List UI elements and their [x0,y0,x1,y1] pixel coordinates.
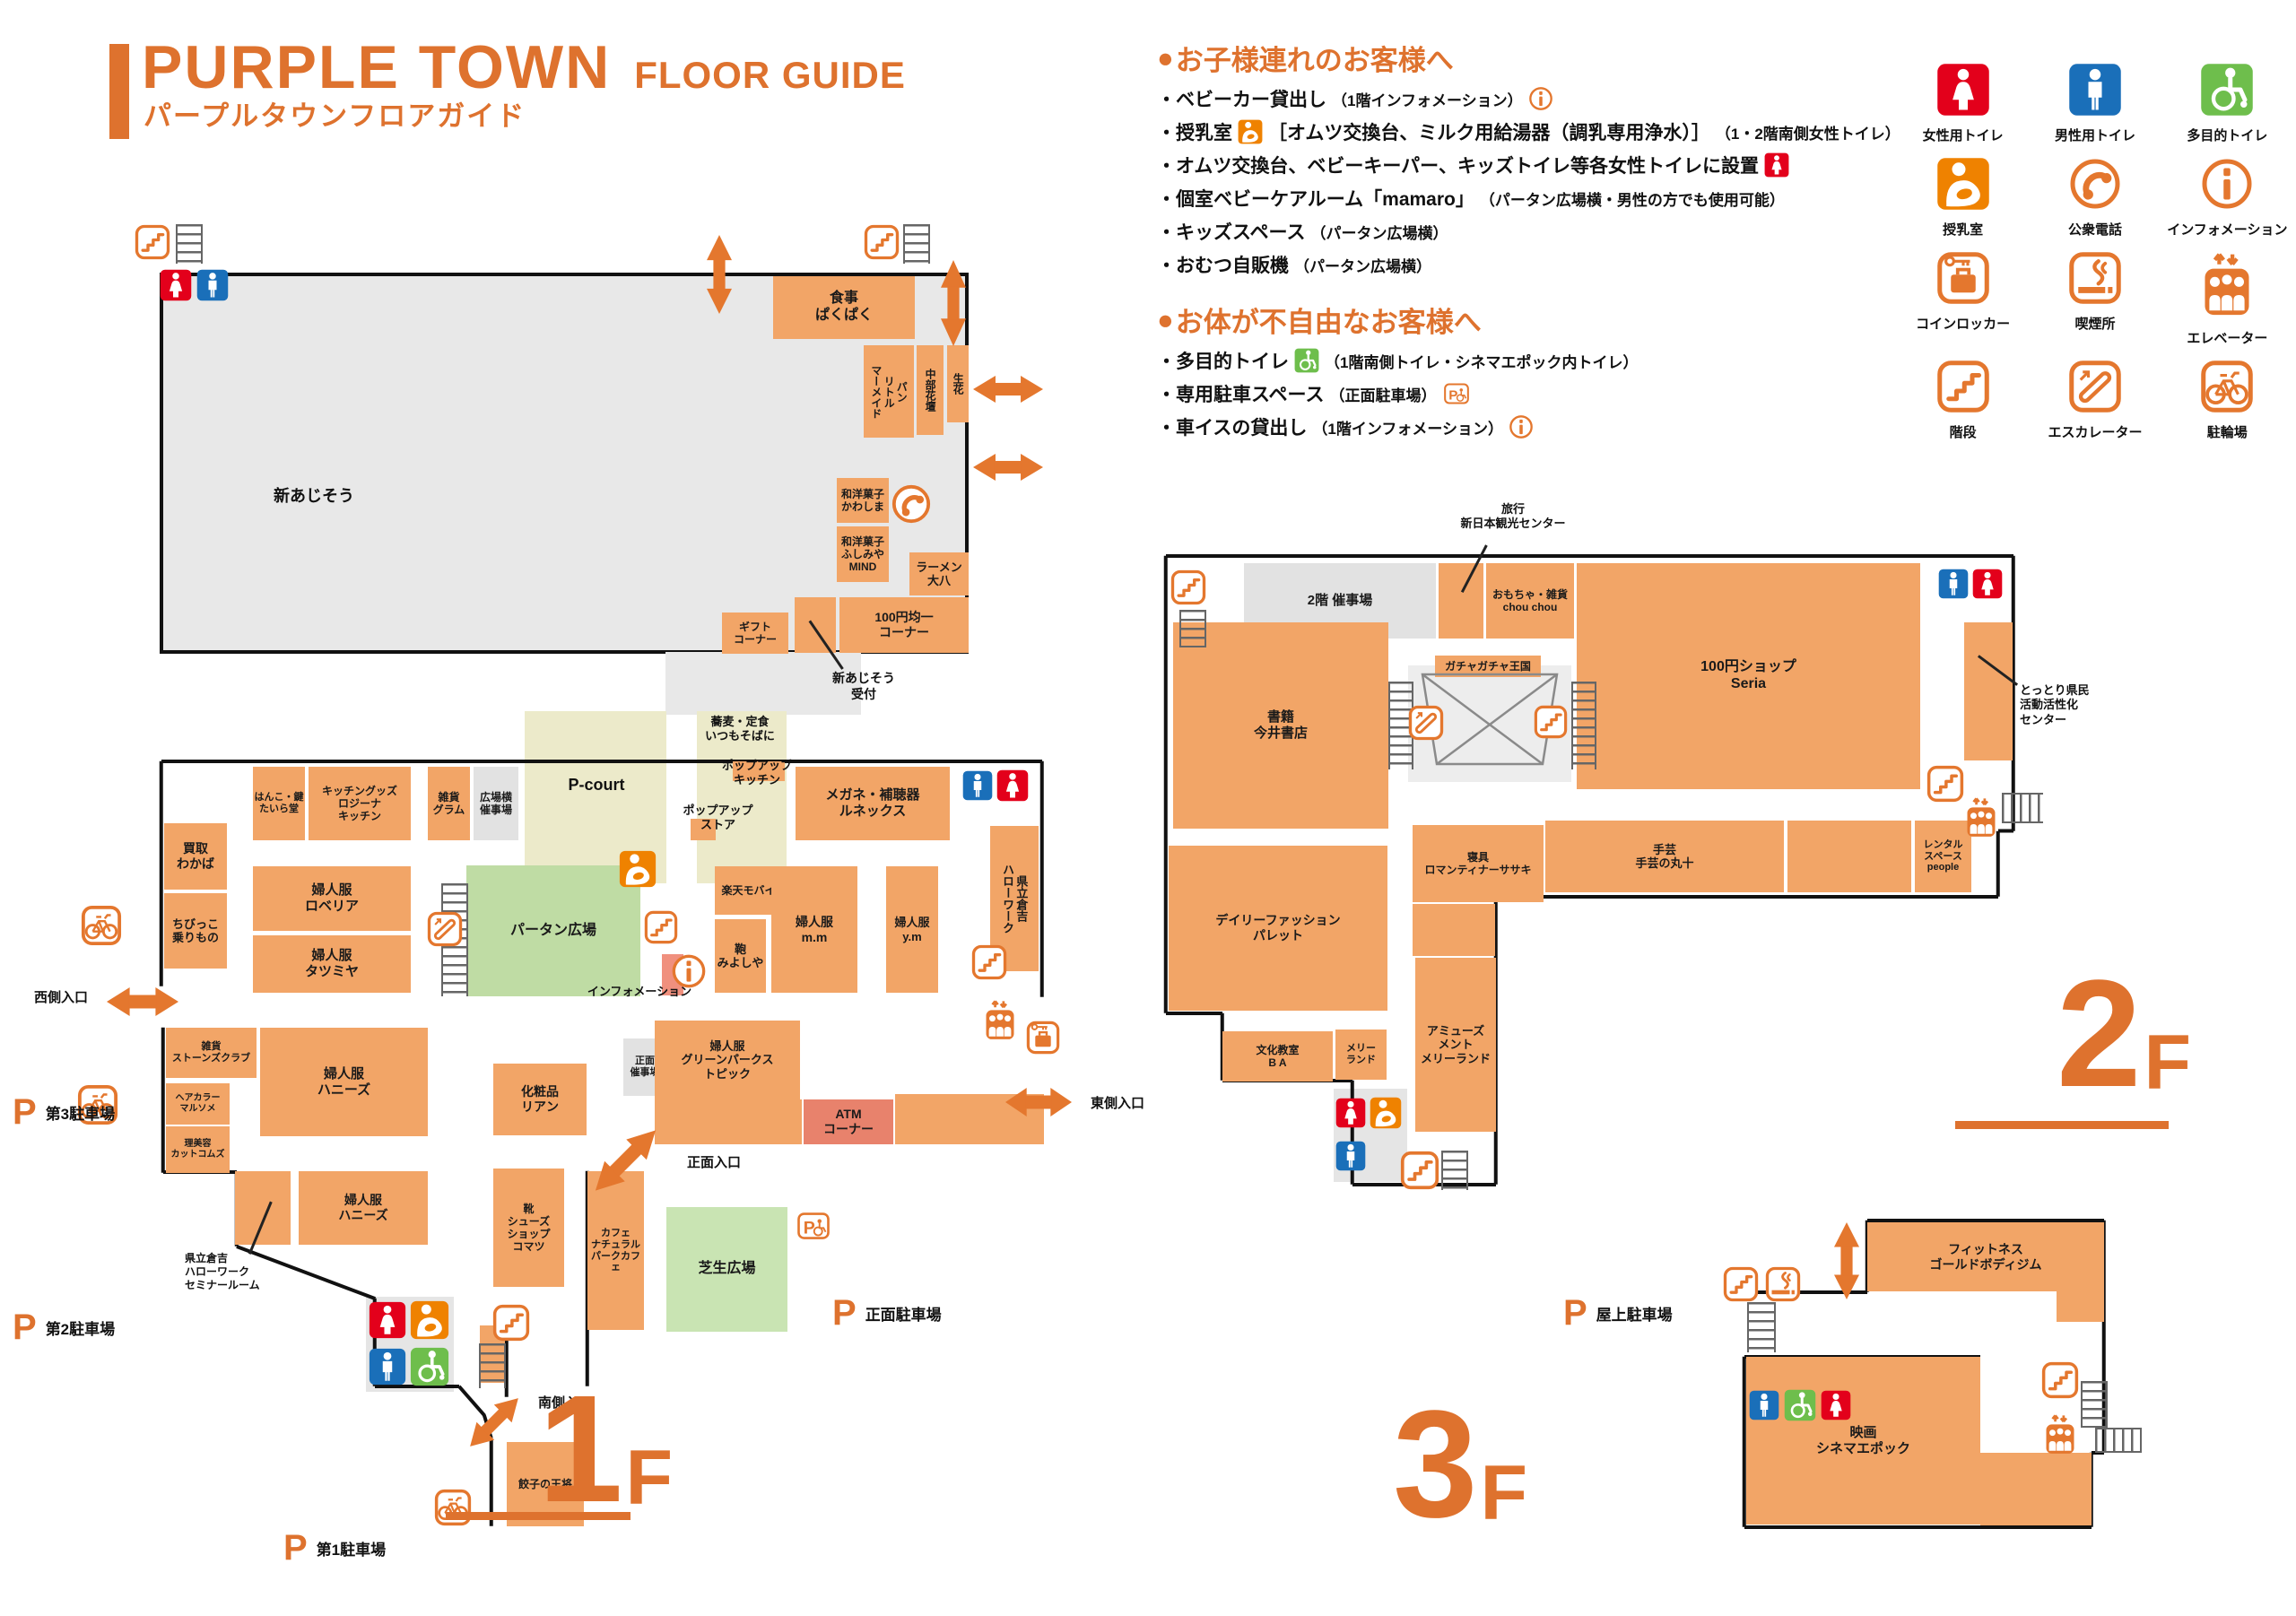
floor-number: 2 [2057,973,2142,1095]
floor-underline [1955,1121,2169,1129]
map-border-line [1744,1525,2092,1529]
floor-label-2f: 2F [2057,973,2191,1095]
store-block [655,1099,802,1144]
floor-number: 3 [1393,1403,1478,1525]
stairs-icon [1400,1149,1439,1192]
store-block: ヘアカラー マルソメ [166,1083,230,1125]
map-text: 新あじそう 受付 [814,671,913,702]
stairs-icon [864,222,900,262]
toiletF-icon [369,1299,406,1342]
stairs-icon [1534,703,1568,741]
store-block: 手芸 手芸の丸十 [1545,821,1784,892]
store-block: 婦人服 y.m [886,866,938,993]
parking-icon: P [832,1295,857,1331]
floor-underline [446,1512,631,1520]
entrance-arrow [973,453,1043,482]
toiletF-icon [1972,563,2003,604]
entrance-arrow [107,986,178,1017]
store-block: 婦人服 タツミヤ [253,935,411,993]
store-block: 映画 シネマエポック [1746,1357,1980,1525]
nursing-icon [1370,1092,1402,1134]
stairs-hatch [2095,1428,2142,1453]
map-border-line [1996,831,2000,897]
store-block: 生花 [947,345,969,422]
toiletM-icon [1335,1135,1366,1177]
floor-map: 食事 ぱくぱくパン リトル マーメイド中部花壇生花和洋菓子 かわしま和洋菓子 ふ… [0,0,2296,1616]
map-text: とっとり県民 活動活性化 センター [2020,683,2136,727]
store-block: 理美容 カットコムズ [166,1126,230,1173]
store-block: メリー ランド [1335,1030,1387,1080]
store-block: アミューズ メント メリーランド [1415,958,1496,1132]
stairs-hatch [1441,1151,1468,1190]
store-block: 化粧品 リアン [493,1064,587,1135]
map-border-line [458,1386,486,1416]
store-block: 書籍 今井書店 [1173,622,1388,829]
bicycle-icon [81,904,122,947]
parking-name: 第2駐車場 [46,1316,115,1339]
store-block: 婦人服 グリーンパークス トピック [655,1021,800,1099]
entrance-arrow [973,375,1043,404]
store-block: キッチングッズ ロジーナ キッチン [309,767,411,840]
store-block: はんこ・鍵 たいら堂 [253,767,305,840]
store-block: 100円均一 コーナー [839,597,969,653]
stairs-icon [971,943,1007,982]
store-block [1980,1453,2092,1525]
stairs-icon [1170,568,1206,607]
stairs-hatch [2081,1381,2108,1428]
stairs-icon [1723,1264,1759,1304]
stairs-icon [1926,763,1964,804]
escalator-icon [427,909,463,949]
map-border-line [1166,1012,1222,1015]
parking-name: 屋上駐車場 [1596,1302,1673,1325]
store-block: パン リトル マーメイド [864,345,914,438]
map-text: 新あじそう [251,486,377,507]
store-block [1787,821,1911,892]
parking-label: P屋上駐車場 [1563,1295,1673,1331]
parking-label: P正面駐車場 [832,1295,942,1331]
store-block: 婦人服 ハニーズ [260,1028,428,1136]
store-block: 雑貨 グラム [428,767,470,840]
floor-label-3f: 3F [1393,1403,1527,1525]
pwheel-icon: P [795,1210,832,1242]
store-block: おもちゃ・雑貨 chou chou [1486,563,1574,639]
entrance-arrow [940,260,967,346]
map-border-line [1040,761,1044,997]
toiletM-icon [962,765,993,806]
stairs-icon [492,1302,530,1343]
map-text: 東側入口 [1074,1096,1161,1113]
parking-name: 正面駐車場 [865,1302,942,1325]
store-block: パータン広場 [466,865,640,996]
info-icon [671,953,707,989]
stairs-hatch [1179,610,1206,647]
toiletF-icon [996,765,1029,806]
reception-block [795,597,836,653]
store-block: ちびっこ 乗りもの [164,893,227,969]
map-border-line [1496,895,1998,899]
store-block: 中部花壇 [917,345,944,435]
toiletM-icon [196,265,229,306]
store-block: 買取 わかば [164,823,227,890]
elevator-icon [1964,796,1998,839]
store-block: 100円ショップ Seria [1577,563,1920,789]
escalator-icon [1408,703,1444,743]
store-block: デイリーファッション パレット [1169,846,1387,1011]
bicycle-icon [434,1487,472,1528]
map-text: 県立倉吉 ハローワーク セミナールーム [185,1252,301,1292]
stairs-hatch [176,224,203,264]
toiletM-icon [369,1345,406,1388]
map-text: ポップアップ キッチン [709,759,805,788]
store-block: 芝生広場 [666,1207,787,1332]
store-block: 靴 シューズ ショップ コマツ [493,1169,564,1287]
elevator-icon [983,999,1017,1042]
parking-icon: P [1563,1295,1587,1331]
store-block [2057,1291,2104,1322]
map-border-line [161,1028,165,1173]
wheelchair-icon [1784,1385,1816,1426]
store-block: ATM コーナー [804,1099,893,1144]
parking-name: 第3駐車場 [46,1101,115,1124]
phone-icon [891,483,932,525]
store-block: 婦人服 m.m [771,866,857,993]
map-text: 西側入口 [18,990,104,1007]
toiletF-icon [1821,1385,1851,1426]
store-block: 和洋菓子 ふしみや MIND [837,526,889,582]
store-block: 文化教室 B A [1222,1031,1333,1082]
map-border-line [1998,830,2013,833]
parking-icon: P [283,1530,308,1566]
store-block: フィットネス ゴールドボディジム [1867,1222,2104,1291]
stairs-hatch [1747,1302,1776,1352]
store-block: レンタル スペース people [1915,821,1971,892]
store-block: 広場横 催事場 [474,767,518,840]
store-block: 婦人服 ハニーズ [299,1171,428,1245]
map-text: 蕎麦・定食 いつもそばに [686,715,794,744]
tottori-center-block [1964,622,2013,760]
store-block: 雑貨 ストーンズクラブ [166,1028,257,1078]
map-text: P-court [538,775,655,795]
map-border-line [1164,556,1168,1013]
store-block: ラーメン 大八 [909,552,969,595]
floor-number: 1 [538,1388,623,1510]
map-text: 正面入口 [671,1155,757,1172]
store-block: 鞄 みよしや [715,919,766,993]
stairs-icon [2041,1360,2079,1401]
store-block: カフェ ナチュラル パークカフェ [587,1171,644,1330]
stairs-hatch [903,224,930,264]
parking-label: P第1駐車場 [283,1530,386,1566]
map-border-line [161,760,1042,763]
travel-center-block [1439,563,1483,639]
store-block: 婦人服 ロベリア [253,866,411,931]
toiletF-icon [160,265,192,306]
floor-suffix: F [626,1447,674,1510]
store-block: 和洋菓子 かわしま [837,478,889,523]
smoking-icon [1765,1264,1801,1304]
map-text: 旅行 新日本観光センター [1419,502,1607,532]
entrance-arrow [1005,1087,1072,1117]
stairs-icon [644,908,678,946]
store-block: メガネ・補聴器 ルネックス [796,767,950,840]
store-block [1413,904,1495,956]
nursing-icon [619,850,657,888]
stairs-hatch [479,1343,506,1388]
store-block: 食事 ぱくぱく [773,276,915,339]
map-border-line [160,761,163,986]
toiletM-icon [1938,563,1969,604]
svg-text:P: P [804,1218,815,1238]
toiletM-icon [1749,1385,1779,1426]
stairs-icon [135,222,170,262]
toiletF-icon [1335,1092,1366,1134]
floor-label-1f: 1F [538,1388,673,1510]
floor-suffix: F [1481,1462,1528,1525]
map-border-line [1166,554,2013,558]
parking-label: P第3駐車場 [13,1094,115,1130]
parking-icon: P [13,1094,37,1130]
entrance-arrow [706,235,733,314]
elevator-icon [2043,1413,2077,1456]
parking-name: 第1駐車場 [317,1537,386,1560]
store-block: 寝具 ロマンティナーササキ [1413,825,1544,902]
entrance-arrow [1833,1222,1860,1299]
store-block: ギフト コーナー [722,613,788,654]
nursing-icon [410,1299,449,1342]
parking-label: P第2駐車場 [13,1309,115,1345]
map-text: ポップアップ ストア [671,804,765,833]
stairs-hatch [2002,793,2043,823]
parking-icon: P [13,1309,37,1345]
floor-suffix: F [2144,1031,2192,1095]
locker-icon [1026,1019,1060,1056]
store-block [235,1171,291,1245]
wheelchair-icon [410,1345,449,1388]
stairs-hatch [1571,682,1596,769]
map-text: インフォメーション [568,985,711,999]
